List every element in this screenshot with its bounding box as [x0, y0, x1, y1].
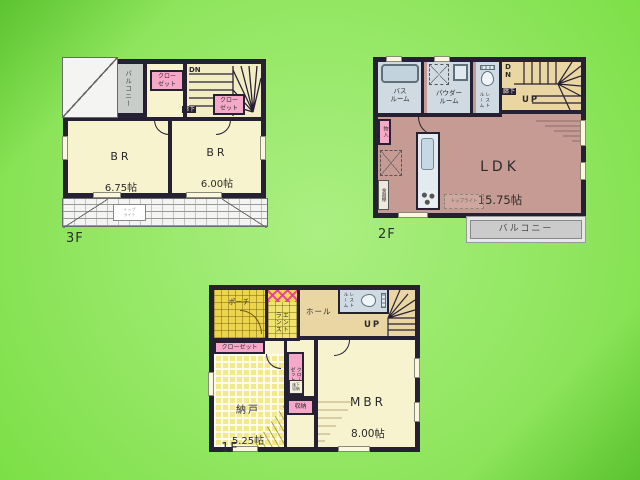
- window-marker: [398, 212, 428, 218]
- wall: [502, 110, 581, 114]
- washer-icon: [429, 64, 449, 85]
- window-marker: [434, 56, 450, 62]
- closet-3f-mid-label: クロー ゼット: [220, 97, 238, 111]
- window-marker: [260, 136, 266, 160]
- roof-diagonal: [63, 199, 108, 228]
- stairs-2f: D N 廊下 UP: [502, 62, 581, 110]
- balcony-2f: バルコニー: [466, 216, 586, 243]
- mbr-room: MBR 8.00帖: [318, 340, 415, 447]
- entrance-label: エント ランス: [274, 304, 288, 340]
- window-marker: [386, 56, 402, 62]
- floor-1f-plan: ポーチ エント ランス ホール レスト ルーム: [207, 283, 423, 460]
- entrance-canopy: [268, 290, 297, 302]
- nando-room: 納戸 5.25帖: [214, 354, 284, 447]
- skylight-3f: トップ ライト: [113, 204, 146, 221]
- underfloor-storage: 床下 収納: [289, 380, 303, 394]
- floor-3f-tag: 3F: [66, 231, 84, 246]
- sink-icon: [421, 138, 434, 170]
- restroom-1f-label: レスト ルーム: [342, 291, 354, 310]
- closet-1f-top-label: クローゼット: [221, 344, 257, 351]
- ldk-name: LDK: [440, 159, 560, 176]
- underfloor-storage-label: 床下 収納: [292, 383, 300, 392]
- restroom-2f-label: レスト ルーム: [478, 90, 490, 110]
- skylight-2f-label: トップライト: [451, 199, 478, 204]
- bathtub-icon: [381, 64, 419, 83]
- stove-icon: [419, 190, 437, 207]
- window-marker: [580, 162, 586, 180]
- understair-hatch: [318, 398, 354, 444]
- floor-2f-tag: 2F: [378, 227, 396, 242]
- hallway-label-2f: 廊下: [502, 88, 516, 95]
- nando-name: 納戸: [216, 405, 280, 417]
- storage-shuno: 収納: [287, 399, 314, 415]
- bedroom1-name: BR: [76, 151, 166, 164]
- washbasin-icon: [453, 64, 468, 81]
- storage-shuno-label: 収納: [294, 403, 306, 410]
- powder-room: パウダー ルーム: [427, 62, 473, 113]
- floorplan-canvas: バルコニー DN 廊下 クロー ゼット クロー ゼット: [0, 0, 640, 480]
- floor-1f-body: ポーチ エント ランス ホール レスト ルーム: [209, 285, 420, 452]
- understair-hatch: [536, 118, 581, 144]
- balcony-2f-label: バルコニー: [499, 224, 554, 235]
- floor-3f-plan: バルコニー DN 廊下 クロー ゼット クロー ゼット: [62, 55, 272, 251]
- closet-3f-top: クロー ゼット: [150, 70, 184, 91]
- up-label-1f: UP: [364, 320, 381, 330]
- window-marker: [580, 120, 586, 146]
- dn-label-3f: DN: [189, 66, 201, 74]
- door-arc: [334, 340, 350, 356]
- kitchen-counter: [416, 132, 440, 210]
- refrigerator-icon: [380, 150, 402, 176]
- storage-monoire: 物入: [378, 119, 391, 145]
- window-marker: [338, 446, 370, 452]
- floor-2f-plan: バス ルーム パウダー ルーム レスト ルーム: [372, 53, 588, 249]
- roof-hatch-bottom: トップ ライト: [62, 198, 268, 227]
- bedroom2-size: 6.00帖: [174, 179, 260, 191]
- closet-3f-mid: クロー ゼット: [213, 94, 245, 115]
- window-marker: [414, 402, 420, 422]
- bath-room: バス ルーム: [378, 62, 424, 113]
- stairs-2f-drawing: [502, 62, 581, 110]
- porch-label: ポーチ: [218, 298, 260, 306]
- wall: [183, 64, 187, 117]
- dn-label-2f: D N: [504, 63, 512, 80]
- bedroom1-size: 6.75帖: [76, 183, 166, 195]
- balcony-3f-label: バルコニー: [123, 66, 131, 112]
- toilet-icon: [480, 65, 495, 70]
- powder-label: パウダー ルーム: [428, 90, 470, 105]
- hall-label: ホール: [306, 308, 332, 317]
- floor-2f-body: バス ルーム パウダー ルーム レスト ルーム: [373, 57, 586, 218]
- ldk-label: LDK 15.75帖: [440, 140, 560, 227]
- up-label-2f: UP: [522, 95, 539, 105]
- bath-label: バス ルーム: [380, 88, 420, 103]
- wall: [378, 113, 502, 117]
- cupboard: 食器棚: [378, 180, 389, 210]
- bedroom2-name: BR: [174, 147, 260, 160]
- balcony-2f-inner: バルコニー: [470, 220, 582, 239]
- entrance: エント ランス: [268, 302, 297, 341]
- storage-monoire-label: 物入: [382, 126, 388, 138]
- floor-1f-tag: 1F: [221, 441, 239, 456]
- restroom-2f: レスト ルーム: [476, 62, 502, 113]
- window-marker: [414, 358, 420, 378]
- roof-hatch-topleft: [62, 57, 118, 118]
- window-marker: [208, 372, 214, 396]
- closet-3f-top-label: クロー ゼット: [158, 73, 176, 87]
- porch: ポーチ: [214, 290, 265, 338]
- skylight-3f-label: トップ ライト: [124, 208, 136, 217]
- skylight-2f: トップライト: [444, 194, 484, 209]
- door-arc: [240, 310, 262, 334]
- cupboard-label: 食器棚: [381, 188, 386, 202]
- roof-diagonal: [222, 199, 267, 228]
- window-marker: [62, 136, 68, 160]
- toilet-icon: [481, 71, 494, 86]
- closet-1f-top: クローゼット: [214, 341, 265, 354]
